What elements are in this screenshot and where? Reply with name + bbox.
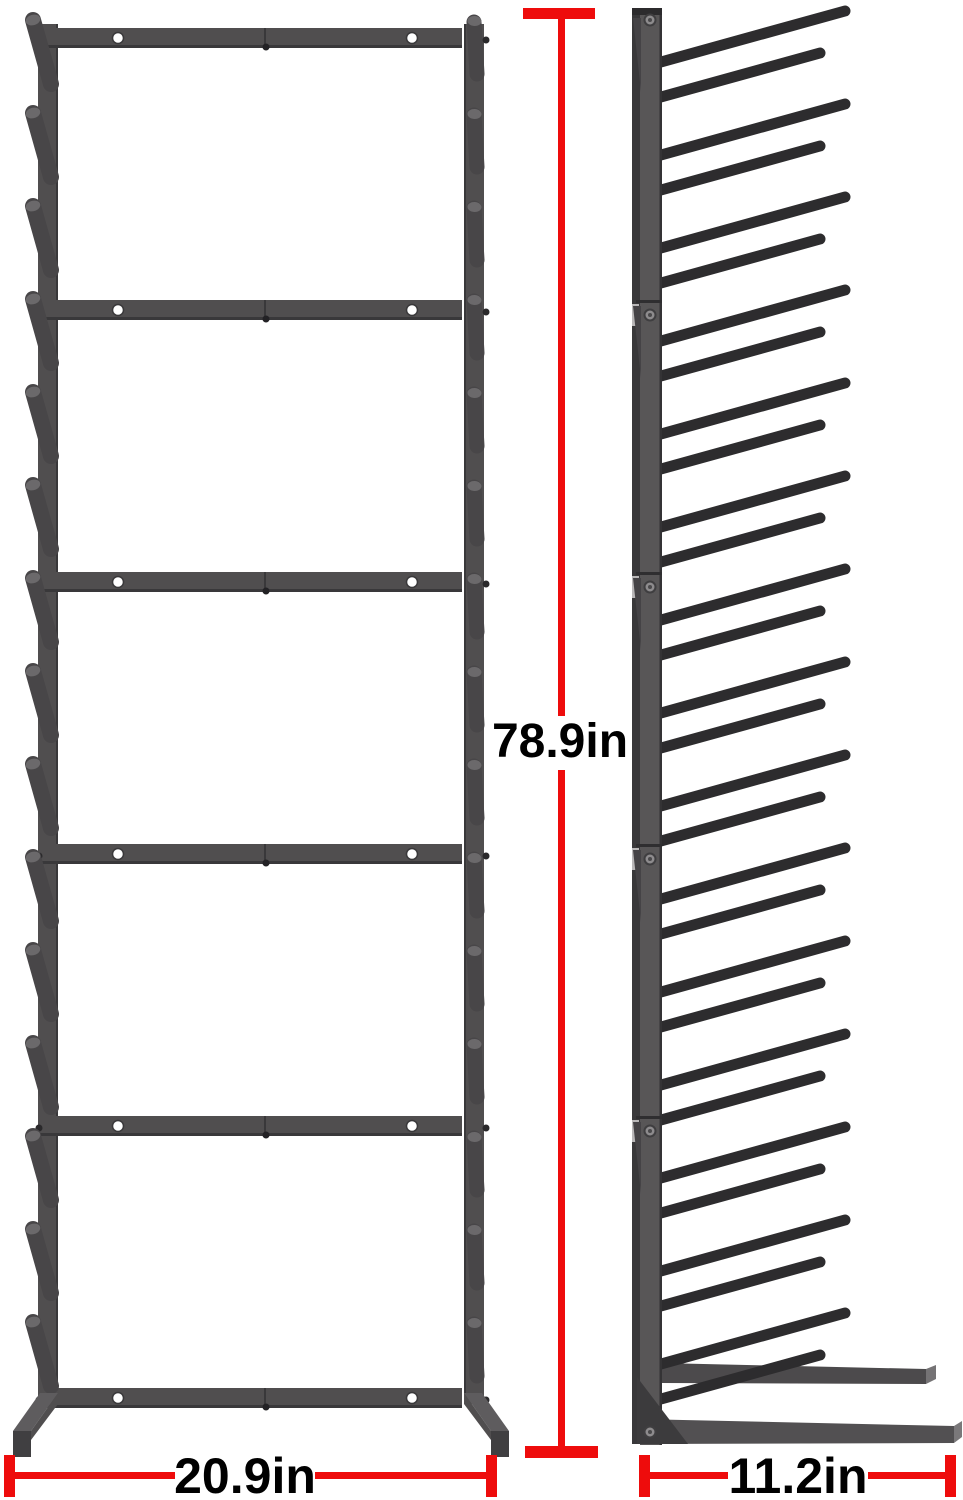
depth-right-cap xyxy=(945,1455,956,1497)
side-peg-pair xyxy=(661,755,845,841)
front-crossbar xyxy=(36,572,490,595)
screw-hole xyxy=(113,849,124,860)
peg-body xyxy=(474,580,477,632)
crossbar-bottom-edge xyxy=(40,1405,462,1408)
center-bolt xyxy=(263,1404,270,1411)
side-peg-pair xyxy=(661,662,845,748)
front-peg-right xyxy=(467,1132,482,1190)
foot-front-face xyxy=(13,1431,31,1457)
side-peg-pair xyxy=(661,848,845,934)
height-top-cap xyxy=(523,8,595,19)
side-screw xyxy=(645,582,656,593)
crossbar-bottom-edge xyxy=(40,317,462,320)
height-label: 78.9in xyxy=(492,715,628,768)
side-peg-pair xyxy=(661,1127,845,1213)
right-side-bolt xyxy=(483,581,490,588)
front-peg-right xyxy=(467,853,482,911)
side-peg-pair xyxy=(661,476,845,562)
screw-hole xyxy=(113,305,124,316)
front-peg-right xyxy=(467,109,482,167)
peg-body xyxy=(474,1045,477,1097)
joint-seam xyxy=(636,572,662,575)
peg-body xyxy=(474,1138,477,1190)
side-peg-pair xyxy=(661,569,845,655)
front-left-foot xyxy=(13,1393,58,1457)
front-peg-right xyxy=(467,1225,482,1283)
depth-line-right xyxy=(868,1472,945,1479)
product-diagram-canvas: 78.9in20.9in11.2in xyxy=(0,0,963,1500)
width-dimension: 20.9in xyxy=(4,1448,497,1500)
peg-body xyxy=(474,766,477,818)
front-peg-right xyxy=(467,202,482,260)
front-crossbar xyxy=(36,300,490,323)
screw-hole xyxy=(113,33,124,44)
side-near-foot-end xyxy=(954,1421,962,1443)
front-peg-right xyxy=(467,1039,482,1097)
front-right-rail-edge xyxy=(464,24,466,1404)
side-far-foot-end xyxy=(926,1365,936,1384)
front-peg-right xyxy=(467,760,482,818)
front-peg-right xyxy=(467,946,482,1004)
screw-hole xyxy=(648,1129,652,1133)
screw-hole xyxy=(407,577,418,588)
side-peg-pair xyxy=(661,197,845,283)
screw-hole xyxy=(407,305,418,316)
front-right-foot xyxy=(464,1393,509,1457)
peg-body xyxy=(474,1231,477,1283)
width-line-left xyxy=(15,1472,175,1479)
side-peg-pair xyxy=(661,1313,845,1399)
side-screw xyxy=(645,854,656,865)
screw-hole xyxy=(407,1393,418,1404)
peg-body xyxy=(474,1324,477,1376)
foot-front-face xyxy=(491,1431,509,1457)
front-crossbar xyxy=(36,844,490,867)
front-peg-right xyxy=(467,388,482,446)
front-peg-right xyxy=(467,481,482,539)
front-peg-right xyxy=(467,295,482,353)
screw-hole xyxy=(407,33,418,44)
crossbar-bottom-edge xyxy=(40,1133,462,1136)
front-view xyxy=(13,13,509,1457)
side-peg-pair xyxy=(661,11,845,97)
height-dimension: 78.9in xyxy=(492,8,628,1458)
screw-hole xyxy=(648,1430,652,1434)
side-peg-pair xyxy=(661,1220,845,1306)
front-peg-right xyxy=(467,1318,482,1376)
side-view xyxy=(632,8,962,1445)
peg-body xyxy=(474,394,477,446)
center-bolt xyxy=(263,316,270,323)
right-side-bolt xyxy=(483,1125,490,1132)
crossbar-bottom-edge xyxy=(40,589,462,592)
width-label: 20.9in xyxy=(174,1448,316,1500)
front-peg-right xyxy=(467,574,482,632)
crossbar-bottom-edge xyxy=(40,45,462,48)
depth-left-cap xyxy=(639,1455,650,1497)
front-crossbar xyxy=(36,28,490,51)
front-peg-left xyxy=(24,13,51,84)
height-line-upper xyxy=(558,19,565,716)
screw-hole xyxy=(407,849,418,860)
right-side-bolt xyxy=(483,309,490,316)
side-screw xyxy=(645,15,656,26)
side-screw xyxy=(645,1126,656,1137)
side-peg-pair xyxy=(661,290,845,376)
width-right-cap xyxy=(486,1455,497,1497)
depth-label: 11.2in xyxy=(729,1448,868,1500)
side-peg-pair xyxy=(661,941,845,1027)
peg-body xyxy=(474,301,477,353)
side-post-front-edge xyxy=(660,8,663,1445)
right-side-bolt xyxy=(483,37,490,44)
peg-body xyxy=(474,859,477,911)
peg-body xyxy=(474,673,477,725)
crossbar-bottom-edge xyxy=(40,861,462,864)
width-left-cap xyxy=(4,1455,15,1497)
front-peg-right xyxy=(467,16,482,74)
joint-seam xyxy=(636,300,662,303)
peg-body xyxy=(474,208,477,260)
height-line-lower xyxy=(558,770,565,1446)
center-bolt xyxy=(263,1132,270,1139)
side-peg-pair xyxy=(661,104,845,190)
side-screw xyxy=(645,1427,656,1438)
peg-body xyxy=(474,22,477,74)
peg-body xyxy=(474,952,477,1004)
screw-hole xyxy=(648,857,652,861)
joint-seam xyxy=(636,1116,662,1119)
screw-hole xyxy=(648,18,652,22)
peg-body xyxy=(474,115,477,167)
screw-hole xyxy=(113,577,124,588)
screw-hole xyxy=(113,1393,124,1404)
screw-hole xyxy=(113,1121,124,1132)
side-screw xyxy=(645,310,656,321)
center-bolt xyxy=(263,588,270,595)
height-bottom-cap xyxy=(525,1446,598,1458)
side-post-top-cap xyxy=(632,8,662,15)
screw-hole xyxy=(648,313,652,317)
right-side-bolt xyxy=(483,853,490,860)
front-peg-right xyxy=(467,667,482,725)
joint-seam xyxy=(636,844,662,847)
side-post-face xyxy=(640,8,662,1445)
side-peg-pair xyxy=(661,1034,845,1120)
peg-body xyxy=(474,487,477,539)
rack-dimension-diagram: 78.9in20.9in11.2in xyxy=(0,0,963,1500)
screw-hole xyxy=(407,1121,418,1132)
center-bolt xyxy=(263,860,270,867)
width-line-right xyxy=(315,1472,486,1479)
center-bolt xyxy=(263,44,270,51)
front-crossbar xyxy=(36,1388,490,1411)
front-crossbar xyxy=(36,1116,490,1139)
depth-dimension: 11.2in xyxy=(639,1448,956,1500)
depth-line-left xyxy=(650,1472,728,1479)
screw-hole xyxy=(648,585,652,589)
side-post-back-edge xyxy=(632,12,640,1444)
side-peg-pair xyxy=(661,383,845,469)
